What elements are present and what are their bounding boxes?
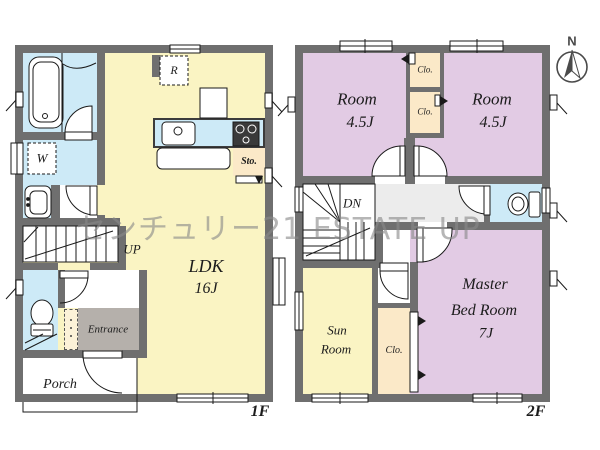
stairs-up: [23, 226, 118, 262]
floor1-label: 1F: [251, 404, 270, 420]
washroom-door: [66, 186, 97, 215]
wash-basin: [25, 186, 51, 218]
room-left-size: 4.5J: [346, 115, 373, 131]
toilet-2f-door: [459, 186, 490, 215]
closet-door-markers: [401, 53, 448, 106]
master-door: [417, 228, 452, 262]
refrigerator-label: R: [170, 64, 177, 76]
kitchen-sink: [162, 122, 195, 145]
ldk-size: 16J: [194, 281, 217, 297]
toilet-2f: [508, 192, 540, 217]
stairs-down: [303, 184, 375, 260]
closet-master-label: Clo.: [386, 346, 403, 356]
cabinet-box: [200, 88, 227, 118]
room-left-door: [372, 146, 405, 176]
stove: [233, 122, 259, 146]
porch-outline: [23, 358, 137, 412]
storage-door: [236, 176, 263, 184]
storage-label: Sto.: [241, 157, 257, 167]
floor2-label: 2F: [527, 404, 546, 420]
porch-label: Porch: [43, 378, 77, 392]
floorplan-image: LDK 16J UP W R Sto. Entrance Porch 1F Ro…: [0, 0, 600, 450]
toilet-1f: [25, 300, 57, 350]
sunroom-label-2: Room: [321, 343, 351, 356]
sunroom-door: [380, 263, 408, 299]
closet-upper-label: Clo.: [417, 66, 432, 75]
kitchen-island: [157, 148, 230, 169]
master-size: 7J: [479, 327, 493, 342]
room-right-door: [414, 146, 447, 176]
compass-icon: [557, 50, 587, 82]
toilet-1f-door: [60, 271, 88, 303]
room-left-label: Room: [337, 91, 377, 108]
front-door: [83, 351, 122, 393]
bathroom-door: [65, 106, 92, 140]
stairs-up-label: UP: [123, 243, 140, 256]
floorplan-linework: [0, 0, 600, 450]
closet-lower-label: Clo.: [417, 108, 432, 117]
shoe-strip-marks: [70, 319, 72, 337]
room-right-label: Room: [472, 91, 512, 108]
sunroom-label-1: Sun: [327, 324, 347, 337]
master-label-1: Master: [462, 277, 507, 293]
washroom-label: W: [37, 152, 48, 165]
stairs-down-label: DN: [343, 197, 361, 210]
closet-folding-door: [410, 312, 426, 392]
master-label-2: Bed Room: [451, 303, 517, 319]
compass-north-label: N: [567, 35, 576, 48]
ldk-label: LDK: [188, 257, 223, 275]
room-right-size: 4.5J: [479, 115, 506, 131]
entrance-label: Entrance: [88, 325, 128, 336]
